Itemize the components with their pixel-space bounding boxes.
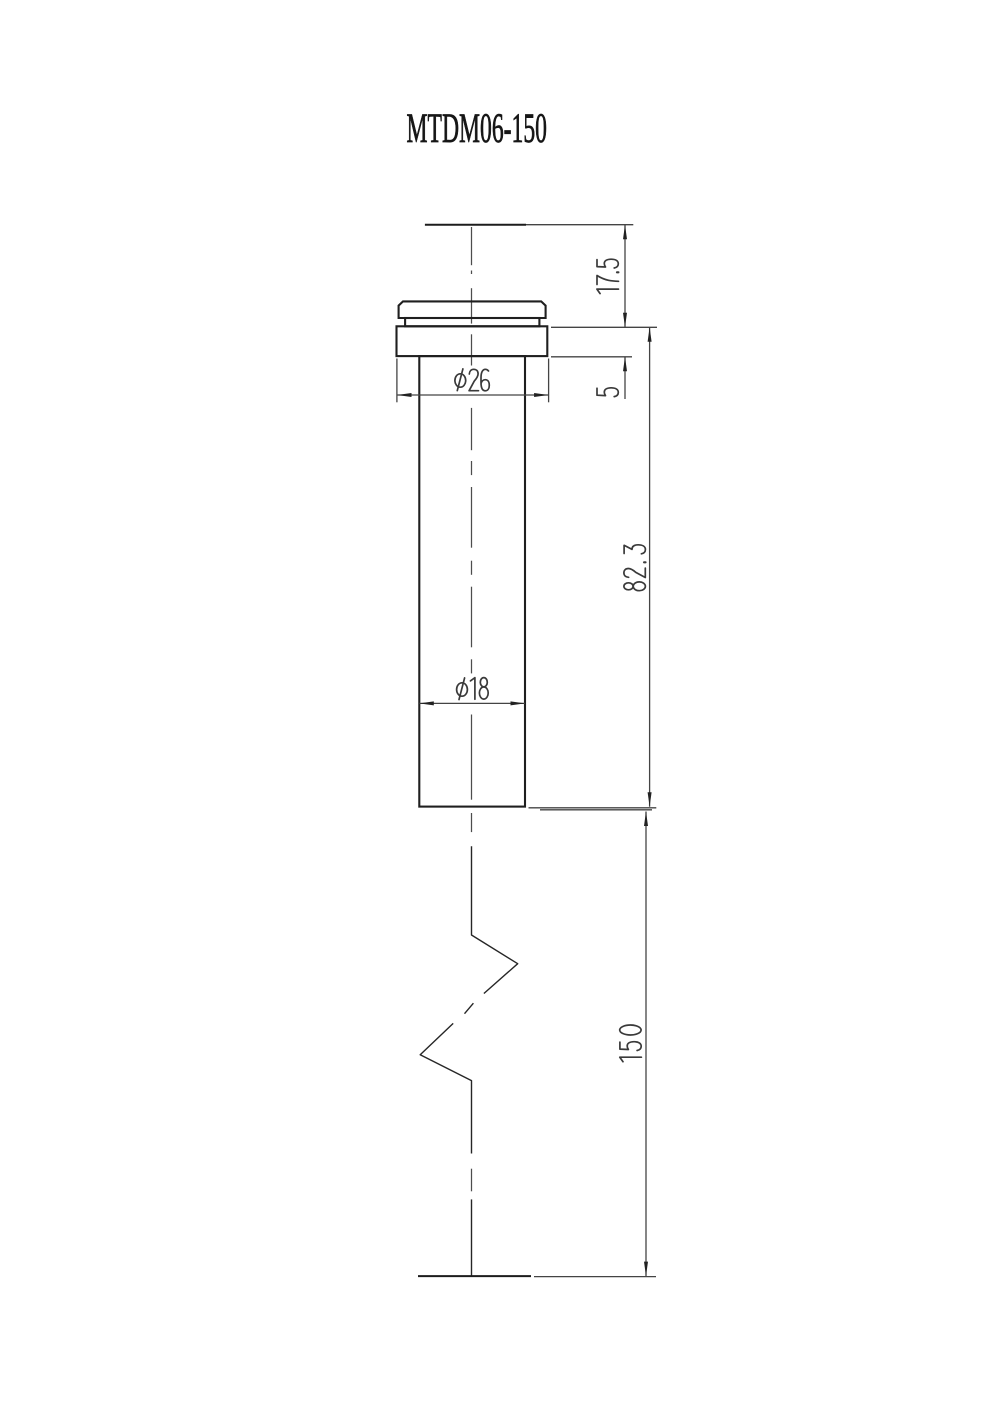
svg-text:MTDM06-150: MTDM06-150 [407, 106, 548, 152]
